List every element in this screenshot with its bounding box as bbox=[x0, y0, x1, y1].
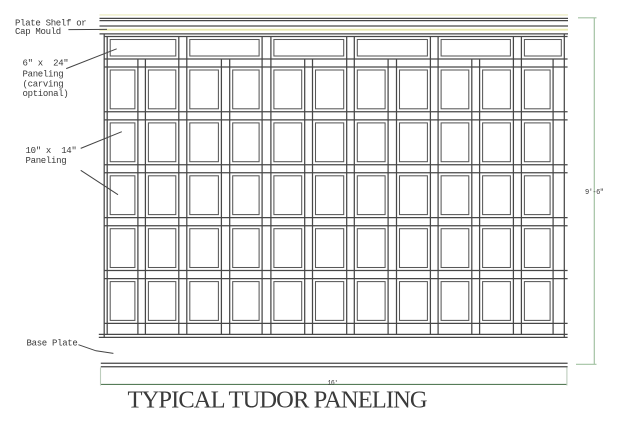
svg-text:optional): optional) bbox=[23, 89, 69, 99]
svg-text:Paneling: Paneling bbox=[23, 70, 64, 80]
svg-text:10" x 14": 10" x 14" bbox=[26, 146, 77, 156]
svg-text:6" x 24": 6" x 24" bbox=[23, 58, 69, 68]
svg-text:Paneling: Paneling bbox=[26, 156, 67, 166]
svg-text:TYPICAL TUDOR PANELING: TYPICAL TUDOR PANELING bbox=[128, 386, 427, 413]
svg-text:9'-6": 9'-6" bbox=[585, 189, 604, 197]
svg-text:Cap Mould: Cap Mould bbox=[15, 27, 61, 37]
svg-text:Base Plate: Base Plate bbox=[27, 338, 78, 348]
svg-text:(carving: (carving bbox=[23, 79, 64, 89]
